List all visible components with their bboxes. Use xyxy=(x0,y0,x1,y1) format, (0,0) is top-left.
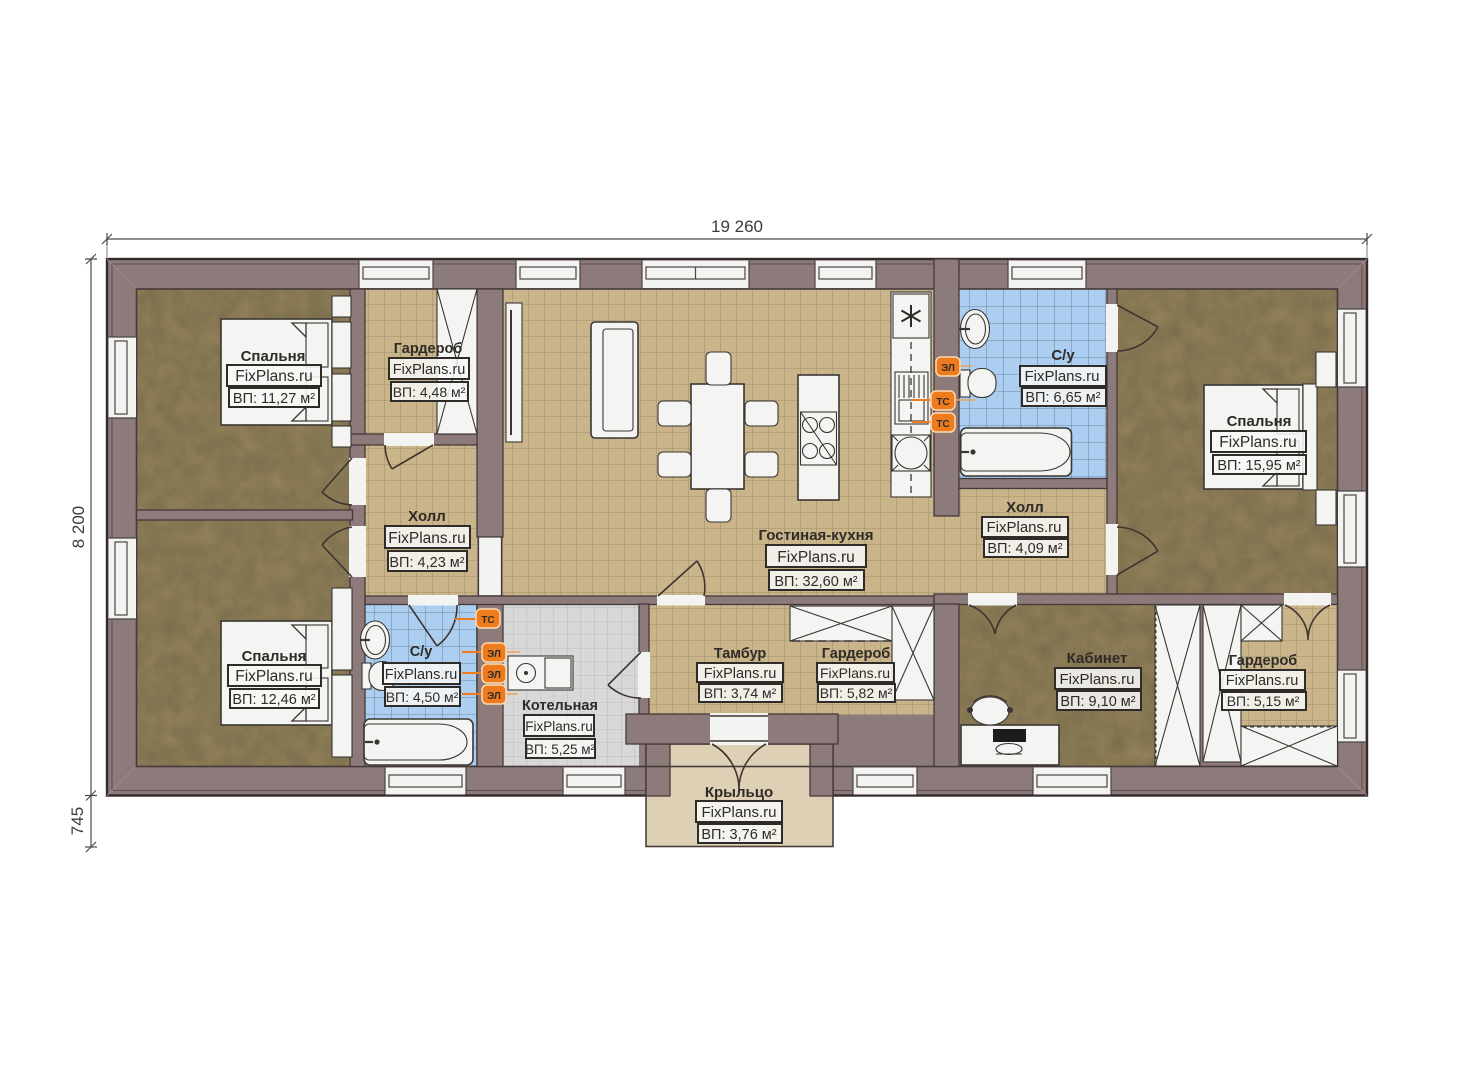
svg-text:Спальня: Спальня xyxy=(241,348,306,365)
svg-text:ВП: 12,46 м²: ВП: 12,46 м² xyxy=(232,692,315,708)
svg-text:С/у: С/у xyxy=(1051,347,1075,364)
svg-text:Гостиная-кухня: Гостиная-кухня xyxy=(759,527,874,544)
svg-text:FixPlans.ru: FixPlans.ru xyxy=(393,362,466,378)
svg-text:19 260: 19 260 xyxy=(711,217,763,236)
svg-text:FixPlans.ru: FixPlans.ru xyxy=(385,667,458,683)
svg-text:Крыльцо: Крыльцо xyxy=(705,784,773,801)
svg-text:FixPlans.ru: FixPlans.ru xyxy=(1219,434,1297,451)
svg-text:ТС: ТС xyxy=(936,397,949,408)
svg-text:Гардероб: Гардероб xyxy=(822,646,891,662)
svg-text:ТС: ТС xyxy=(936,419,949,430)
svg-text:745: 745 xyxy=(68,807,87,835)
svg-text:Спальня: Спальня xyxy=(1227,413,1292,430)
svg-text:ВП: 15,95 м²: ВП: 15,95 м² xyxy=(1217,458,1300,474)
svg-text:ЭЛ: ЭЛ xyxy=(941,363,955,374)
svg-text:FixPlans.ru: FixPlans.ru xyxy=(388,530,466,547)
svg-text:ВП: 5,82 м²: ВП: 5,82 м² xyxy=(820,685,893,701)
svg-text:ВП: 6,65 м²: ВП: 6,65 м² xyxy=(1025,390,1100,406)
svg-text:FixPlans.ru: FixPlans.ru xyxy=(986,519,1061,536)
svg-text:Кабинет: Кабинет xyxy=(1067,650,1128,667)
svg-text:ВП: 11,27 м²: ВП: 11,27 м² xyxy=(233,391,315,407)
svg-text:ВП: 4,48 м²: ВП: 4,48 м² xyxy=(393,384,466,400)
svg-text:FixPlans.ru: FixPlans.ru xyxy=(1024,368,1099,385)
svg-text:С/у: С/у xyxy=(410,644,433,660)
svg-text:FixPlans.ru: FixPlans.ru xyxy=(820,665,890,681)
svg-text:8 200: 8 200 xyxy=(69,506,88,549)
svg-text:Котельная: Котельная xyxy=(522,698,598,714)
svg-text:ВП: 4,23 м²: ВП: 4,23 м² xyxy=(389,555,464,571)
svg-text:Спальня: Спальня xyxy=(242,648,307,665)
svg-text:FixPlans.ru: FixPlans.ru xyxy=(701,804,776,821)
svg-text:ВП: 5,25 м²: ВП: 5,25 м² xyxy=(525,742,596,757)
svg-text:FixPlans.ru: FixPlans.ru xyxy=(235,368,313,385)
svg-text:FixPlans.ru: FixPlans.ru xyxy=(1226,673,1299,689)
svg-text:ЭЛ: ЭЛ xyxy=(487,691,501,702)
svg-text:ВП: 3,74 м²: ВП: 3,74 м² xyxy=(704,685,777,701)
svg-text:ВП: 32,60 м²: ВП: 32,60 м² xyxy=(774,574,857,590)
svg-text:FixPlans.ru: FixPlans.ru xyxy=(704,666,777,682)
svg-text:FixPlans.ru: FixPlans.ru xyxy=(777,549,855,566)
svg-text:Тамбур: Тамбур xyxy=(714,646,767,662)
svg-text:ВП: 3,76 м²: ВП: 3,76 м² xyxy=(701,827,776,843)
svg-text:ВП: 4,50 м²: ВП: 4,50 м² xyxy=(386,689,459,705)
svg-text:FixPlans.ru: FixPlans.ru xyxy=(1059,671,1134,688)
svg-text:ЭЛ: ЭЛ xyxy=(487,670,501,681)
svg-text:ВП: 5,15 м²: ВП: 5,15 м² xyxy=(1227,693,1300,709)
svg-text:Гардероб: Гардероб xyxy=(394,341,463,357)
svg-text:Гардероб: Гардероб xyxy=(1229,653,1298,669)
svg-text:FixPlans.ru: FixPlans.ru xyxy=(235,668,313,685)
svg-text:ЭЛ: ЭЛ xyxy=(487,649,501,660)
svg-text:Холл: Холл xyxy=(408,508,446,525)
svg-text:ТС: ТС xyxy=(481,615,494,626)
svg-text:Холл: Холл xyxy=(1006,499,1044,516)
svg-text:ВП: 9,10 м²: ВП: 9,10 м² xyxy=(1060,694,1135,710)
svg-text:ВП: 4,09 м²: ВП: 4,09 м² xyxy=(987,541,1062,557)
svg-text:FixPlans.ru: FixPlans.ru xyxy=(525,719,593,734)
